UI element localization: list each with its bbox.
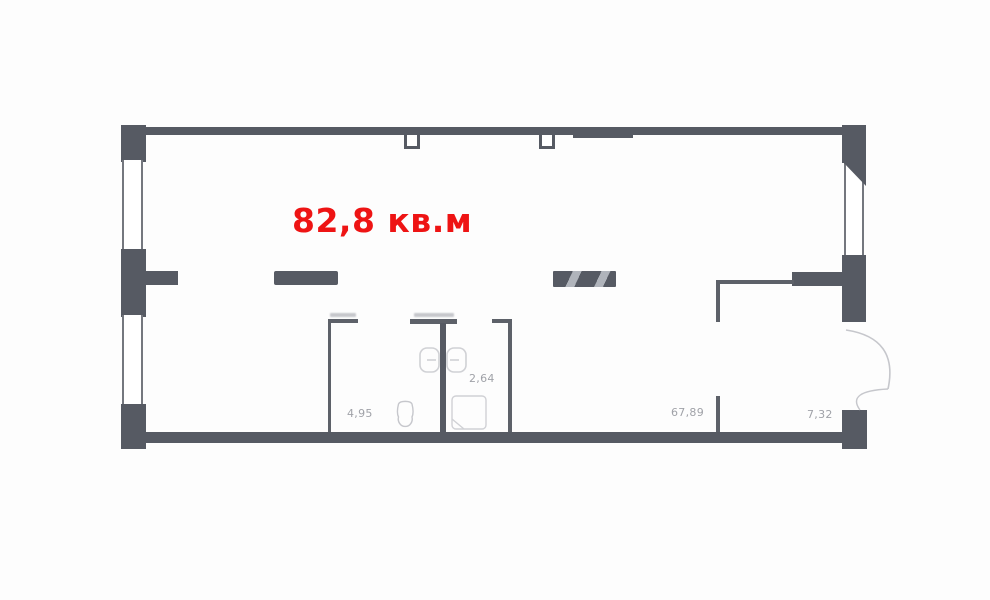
floorplan: 82,8 кв.м 67,89 4,95 2,64 7,32	[0, 0, 990, 600]
door-swing-arc	[846, 330, 890, 389]
toilet-icon	[397, 401, 413, 426]
shower-tray-icon	[452, 396, 486, 429]
double-washbasin-icon	[420, 348, 466, 372]
fixtures-layer	[0, 0, 990, 600]
door-leaf-arc	[857, 389, 889, 410]
floorplan-canvas: 82,8 кв.м 67,89 4,95 2,64 7,32	[0, 0, 990, 600]
corner-chamfer-icon	[842, 161, 866, 186]
